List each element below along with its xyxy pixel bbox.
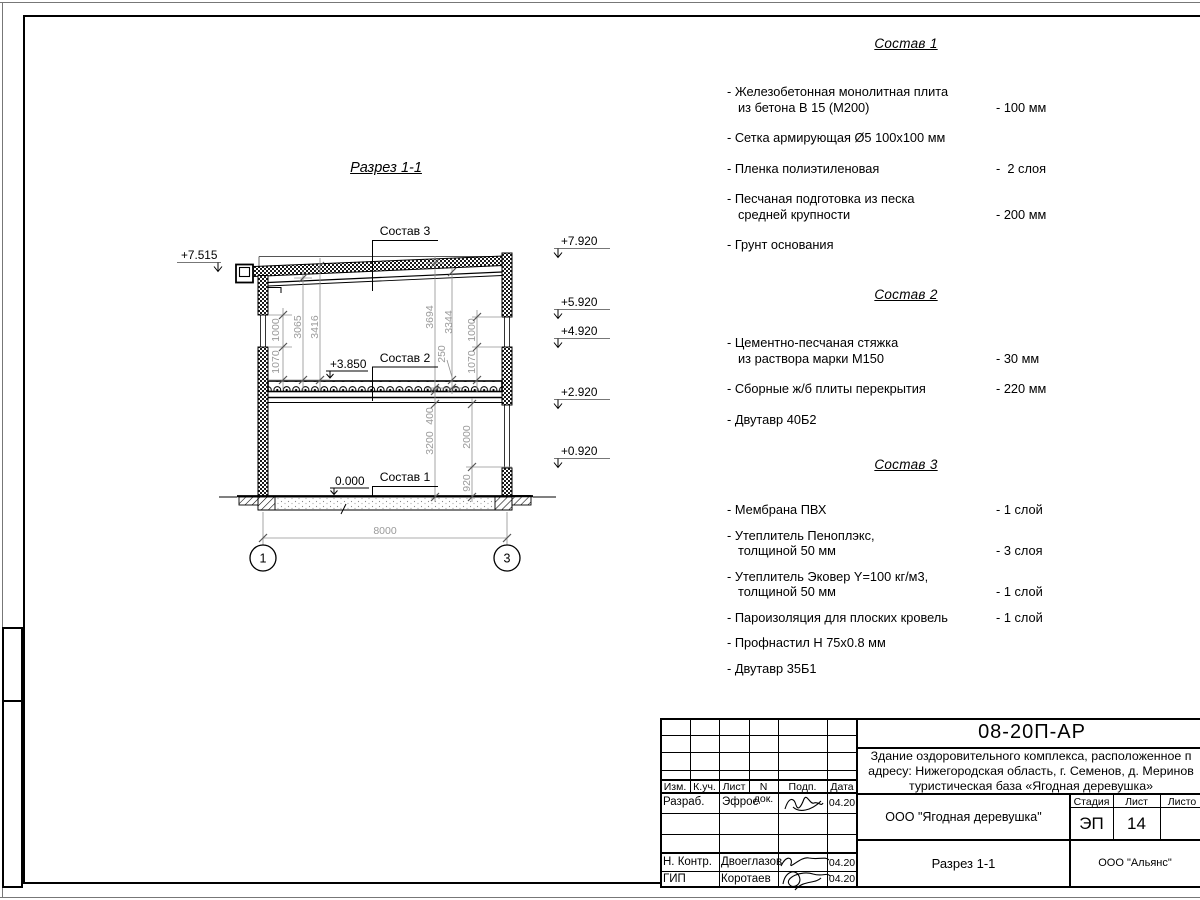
svg-text:3200: 3200 (424, 431, 436, 455)
svg-text:1070: 1070 (270, 350, 282, 374)
item-name: - Грунт основания (727, 237, 996, 253)
section-drawing: 1000 1070 3065 3416 3694 3344 250 1000 1… (145, 215, 630, 585)
list-item: - Песчаная подготовка из песка средней к… (727, 191, 1043, 222)
left-wall (257, 276, 268, 498)
list-item: - Мембрана ПВХ- 1 слой (727, 502, 1043, 518)
svg-text:3: 3 (504, 552, 511, 566)
sheet-edge-top (0, 2, 1200, 3)
list-item: - Двутавр 35Б1 (727, 661, 1043, 677)
svg-text:Состав 2: Состав 2 (380, 351, 431, 365)
sheets-label: Листо (1160, 796, 1200, 808)
list-item: - Профнастил Н 75x0.8 мм (727, 635, 1043, 651)
svg-text:920: 920 (461, 474, 473, 492)
item-value: - 220 мм (996, 381, 1046, 397)
svg-text:+7.920: +7.920 (561, 234, 598, 248)
left-strip-box-1 (2, 627, 23, 702)
col-izm: Изм. (660, 781, 690, 793)
svg-text:1: 1 (260, 552, 267, 566)
svg-text:1000: 1000 (466, 318, 478, 342)
list-item: - Сетка армирующая Ø5 100x100 мм (727, 130, 1043, 146)
col-data: Дата (827, 781, 857, 793)
svg-text:8000: 8000 (373, 525, 397, 537)
item-name: - Утеплитель Пеноплэкс, толщиной 50 мм (727, 528, 996, 559)
composition-3-list: - Мембрана ПВХ- 1 слой - Утеплитель Пено… (727, 502, 1043, 686)
developer-date: 04.20 (827, 797, 857, 809)
svg-text:+7.515: +7.515 (181, 248, 218, 262)
composition-1-list: - Железобетонная монолитная плита из бет… (727, 84, 1043, 268)
item-value: - 1 слой (996, 584, 1043, 600)
item-name: - Сетка армирующая Ø5 100x100 мм (727, 130, 996, 146)
composition-3-title: Состав 3 (858, 457, 954, 472)
svg-text:+0.920: +0.920 (561, 444, 598, 458)
composition-1-title: Состав 1 (858, 36, 954, 51)
svg-text:3416: 3416 (309, 315, 321, 339)
item-value: - 200 мм (996, 207, 1046, 223)
item-name: - Утеплитель Эковер Y=100 кг/м3, толщино… (727, 569, 996, 600)
item-name: - Цементно-песчаная стяжка из раствора м… (727, 335, 996, 366)
list-item: - Сборные ж/б плиты перекрытия- 220 мм (727, 381, 1043, 397)
svg-text:1000: 1000 (270, 318, 282, 342)
item-value: - 100 мм (996, 100, 1046, 116)
item-name: - Пленка полиэтиленовая (727, 161, 996, 177)
sheet-label: Лист (1113, 796, 1160, 808)
col-list: Лист (719, 781, 749, 793)
list-item: - Грунт основания (727, 237, 1043, 253)
item-name: - Железобетонная монолитная плита из бет… (727, 84, 996, 115)
list-item: - Двутавр 40Б2 (727, 412, 1043, 428)
list-item: - Пароизоляция для плоских кровель- 1 сл… (727, 610, 1043, 626)
list-item: - Утеплитель Эковер Y=100 кг/м3, толщино… (727, 569, 1043, 600)
item-name: - Профнастил Н 75x0.8 мм (727, 635, 996, 651)
item-value: - 3 слоя (996, 543, 1043, 559)
svg-text:3344: 3344 (443, 310, 455, 334)
drawing-name: Разрез 1-1 (857, 856, 1070, 871)
item-value: - 1 слой (996, 610, 1043, 626)
svg-text:0.000: 0.000 (335, 474, 365, 488)
stage-label: Стадия (1070, 796, 1113, 808)
item-name: - Сборные ж/б плиты перекрытия (727, 381, 996, 397)
developer-name: Эфрос (722, 796, 758, 808)
item-name: - Мембрана ПВХ (727, 502, 996, 518)
list-item: - Пленка полиэтиленовая- 2 слоя (727, 161, 1043, 177)
sheet-edge-bottom (0, 897, 1200, 898)
signature-approvers (775, 850, 833, 892)
right-wall (501, 253, 512, 497)
svg-text:Состав 3: Состав 3 (380, 224, 431, 238)
gip-name: Коротаев (721, 873, 771, 885)
role-developer: Разраб. (663, 796, 704, 808)
svg-text:Состав 1: Состав 1 (380, 470, 431, 484)
item-name: - Песчаная подготовка из песка средней к… (727, 191, 996, 222)
item-value: - 30 мм (996, 351, 1039, 367)
ncontrol-name: Двоеглазов (721, 856, 782, 868)
item-name: - Двутавр 35Б1 (727, 661, 996, 677)
svg-text:3694: 3694 (424, 305, 436, 329)
svg-text:+4.920: +4.920 (561, 324, 598, 338)
svg-text:3065: 3065 (292, 315, 304, 339)
item-value: - 2 слоя (996, 161, 1046, 177)
document-number: 08-20П-АР (860, 721, 1200, 744)
composition-2-title: Состав 2 (858, 287, 954, 302)
section-title: Разрез 1-1 (342, 160, 430, 176)
list-item: - Утеплитель Пеноплэкс, толщиной 50 мм- … (727, 528, 1043, 559)
item-name: - Двутавр 40Б2 (727, 412, 996, 428)
project-description: Здание оздоровительного комплекса, распо… (858, 749, 1200, 795)
list-item: - Железобетонная монолитная плита из бет… (727, 84, 1043, 115)
left-strip-box-2 (2, 700, 23, 888)
svg-text:+5.920: +5.920 (561, 295, 598, 309)
item-name: - Пароизоляция для плоских кровель (727, 610, 996, 626)
floor-slab (219, 496, 556, 515)
item-value: - 1 слой (996, 502, 1043, 518)
axis-bubbles: 1 3 (250, 545, 520, 571)
svg-text:2000: 2000 (461, 425, 473, 449)
roof-slab (236, 256, 503, 293)
svg-text:+2.920: +2.920 (561, 385, 598, 399)
tb-line (857, 839, 1200, 841)
sheet-number: 14 (1113, 814, 1160, 834)
tb-line (719, 718, 720, 886)
svg-text:400: 400 (424, 407, 436, 425)
svg-text:1070: 1070 (466, 350, 478, 374)
role-gip: ГИП (663, 873, 686, 885)
client-name: ООО "Ягодная деревушка" (858, 810, 1069, 824)
composition-2-list: - Цементно-песчаная стяжка из раствора м… (727, 335, 1043, 442)
list-item: - Цементно-песчаная стяжка из раствора м… (727, 335, 1043, 366)
svg-text:250: 250 (436, 345, 448, 363)
contractor-name: ООО "Альянс" (1070, 857, 1200, 869)
col-podp: Подп. (778, 781, 827, 793)
svg-text:+3.850: +3.850 (330, 357, 367, 371)
stage-value: ЭП (1070, 814, 1113, 834)
drawing-sheet: { "section": { "title": "Разрез 1-1", "l… (0, 0, 1200, 900)
role-ncontrol: Н. Контр. (663, 856, 712, 868)
col-kuch: К.уч. (690, 781, 719, 793)
signature-developer (781, 793, 826, 815)
